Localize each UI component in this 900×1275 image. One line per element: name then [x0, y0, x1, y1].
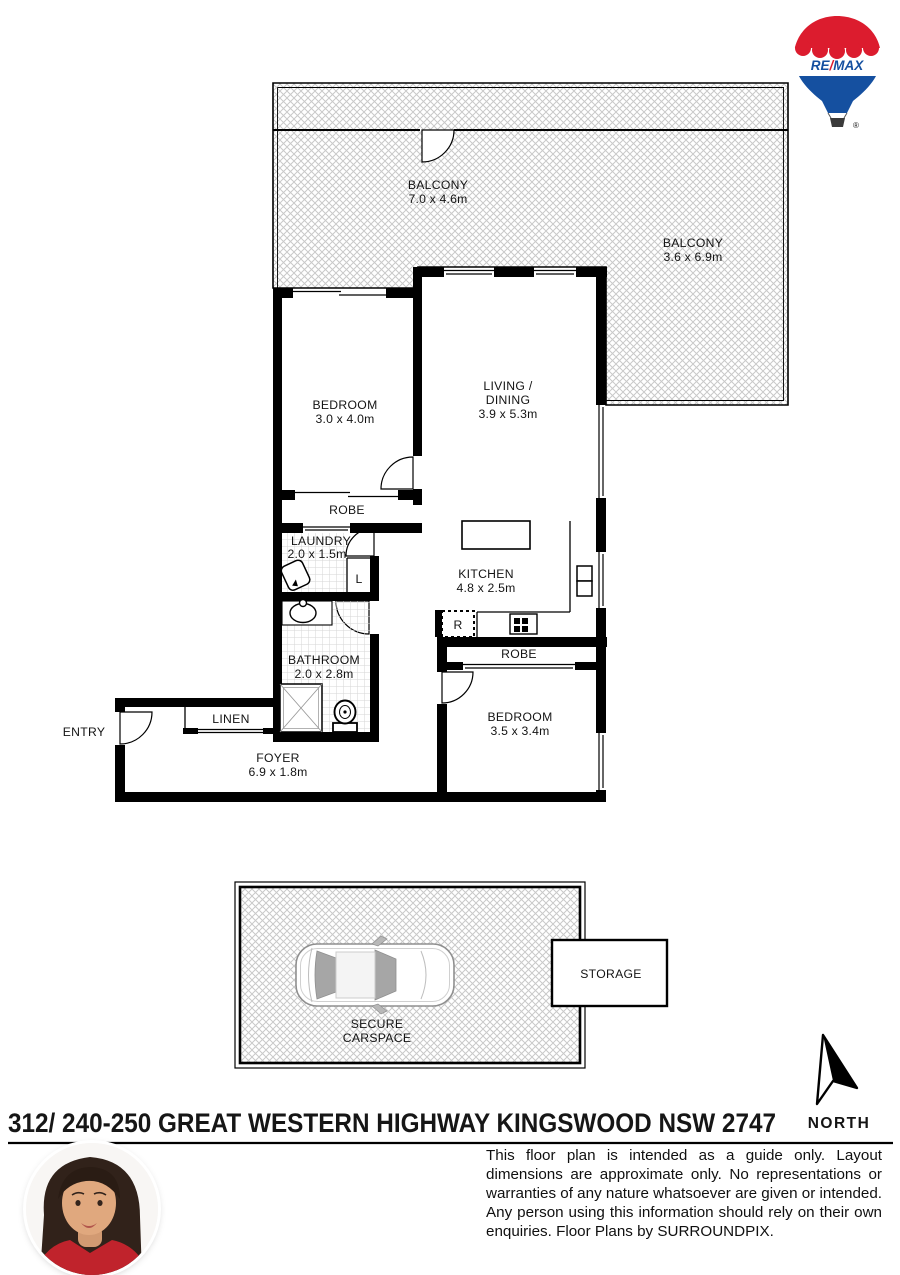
room-label-foyer: FOYER — [256, 751, 299, 765]
room-label-carspace-2: CARSPACE — [343, 1031, 412, 1045]
room-label-laundry: LAUNDRY — [291, 534, 351, 548]
room-label-linen-cupboard: L — [355, 572, 362, 586]
registered-mark: ® — [853, 121, 859, 130]
kitchen-island — [462, 521, 530, 549]
room-label-bathroom: BATHROOM — [288, 653, 360, 667]
disclaimer-text: This floor plan is intended as a guide o… — [486, 1147, 882, 1242]
north-label: NORTH — [808, 1115, 871, 1132]
toilet-icon — [333, 701, 357, 733]
room-label-carspace-1: SECURE — [351, 1017, 404, 1031]
room-label-living-2: DINING — [486, 393, 530, 407]
remax-wordmark: RE/MAX — [811, 58, 865, 73]
room-dims-kitchen: 4.8 x 2.5m — [457, 581, 516, 595]
room-label-balcony-right: BALCONY — [663, 236, 723, 250]
page-title: 312/ 240-250 GREAT WESTERN HIGHWAY KINGS… — [8, 1108, 776, 1138]
room-dims-balcony-top: 7.0 x 4.6m — [409, 192, 468, 206]
room-dims-foyer: 6.9 x 1.8m — [249, 765, 308, 779]
sink-icon — [282, 600, 332, 626]
floor-plan-svg: RE/MAX ® — [0, 0, 900, 1150]
door-arc-bedroom2 — [442, 672, 473, 703]
remax-balloon-logo: RE/MAX ® — [790, 12, 885, 130]
room-dims-laundry: 2.0 x 1.5m — [288, 547, 347, 561]
room-label-bedroom1: BEDROOM — [312, 398, 377, 412]
room-label-robe2: ROBE — [501, 647, 537, 661]
agent-portrait-illustration — [26, 1143, 158, 1275]
room-label-storage: STORAGE — [580, 967, 641, 981]
room-dims-bedroom1: 3.0 x 4.0m — [316, 412, 375, 426]
door-arc-entry — [120, 712, 152, 744]
oven-icon — [577, 566, 592, 596]
room-label-kitchen: KITCHEN — [458, 567, 514, 581]
room-label-balcony-top: BALCONY — [408, 178, 468, 192]
shower-icon — [280, 684, 322, 732]
door-arc-bedroom1 — [381, 457, 413, 489]
balloon-basket — [830, 118, 845, 127]
room-dims-bedroom2: 3.5 x 3.4m — [491, 724, 550, 738]
floorplan-page: RE/MAX ® — [0, 0, 900, 1273]
cooktop-icon — [510, 614, 537, 634]
north-arrow-icon — [817, 1035, 857, 1104]
room-label-robe1: ROBE — [329, 503, 365, 517]
room-label-entry: ENTRY — [63, 725, 106, 739]
room-label-fridge: R — [453, 618, 462, 632]
room-label-bedroom2: BEDROOM — [487, 710, 552, 724]
agent-photo — [26, 1143, 158, 1275]
car-icon — [296, 936, 454, 1014]
room-dims-living: 3.9 x 5.3m — [479, 407, 538, 421]
room-label-living-1: LIVING / — [483, 379, 532, 393]
room-dims-bathroom: 2.0 x 2.8m — [295, 667, 354, 681]
room-label-linen: LINEN — [212, 712, 249, 726]
room-dims-balcony-right: 3.6 x 6.9m — [664, 250, 723, 264]
